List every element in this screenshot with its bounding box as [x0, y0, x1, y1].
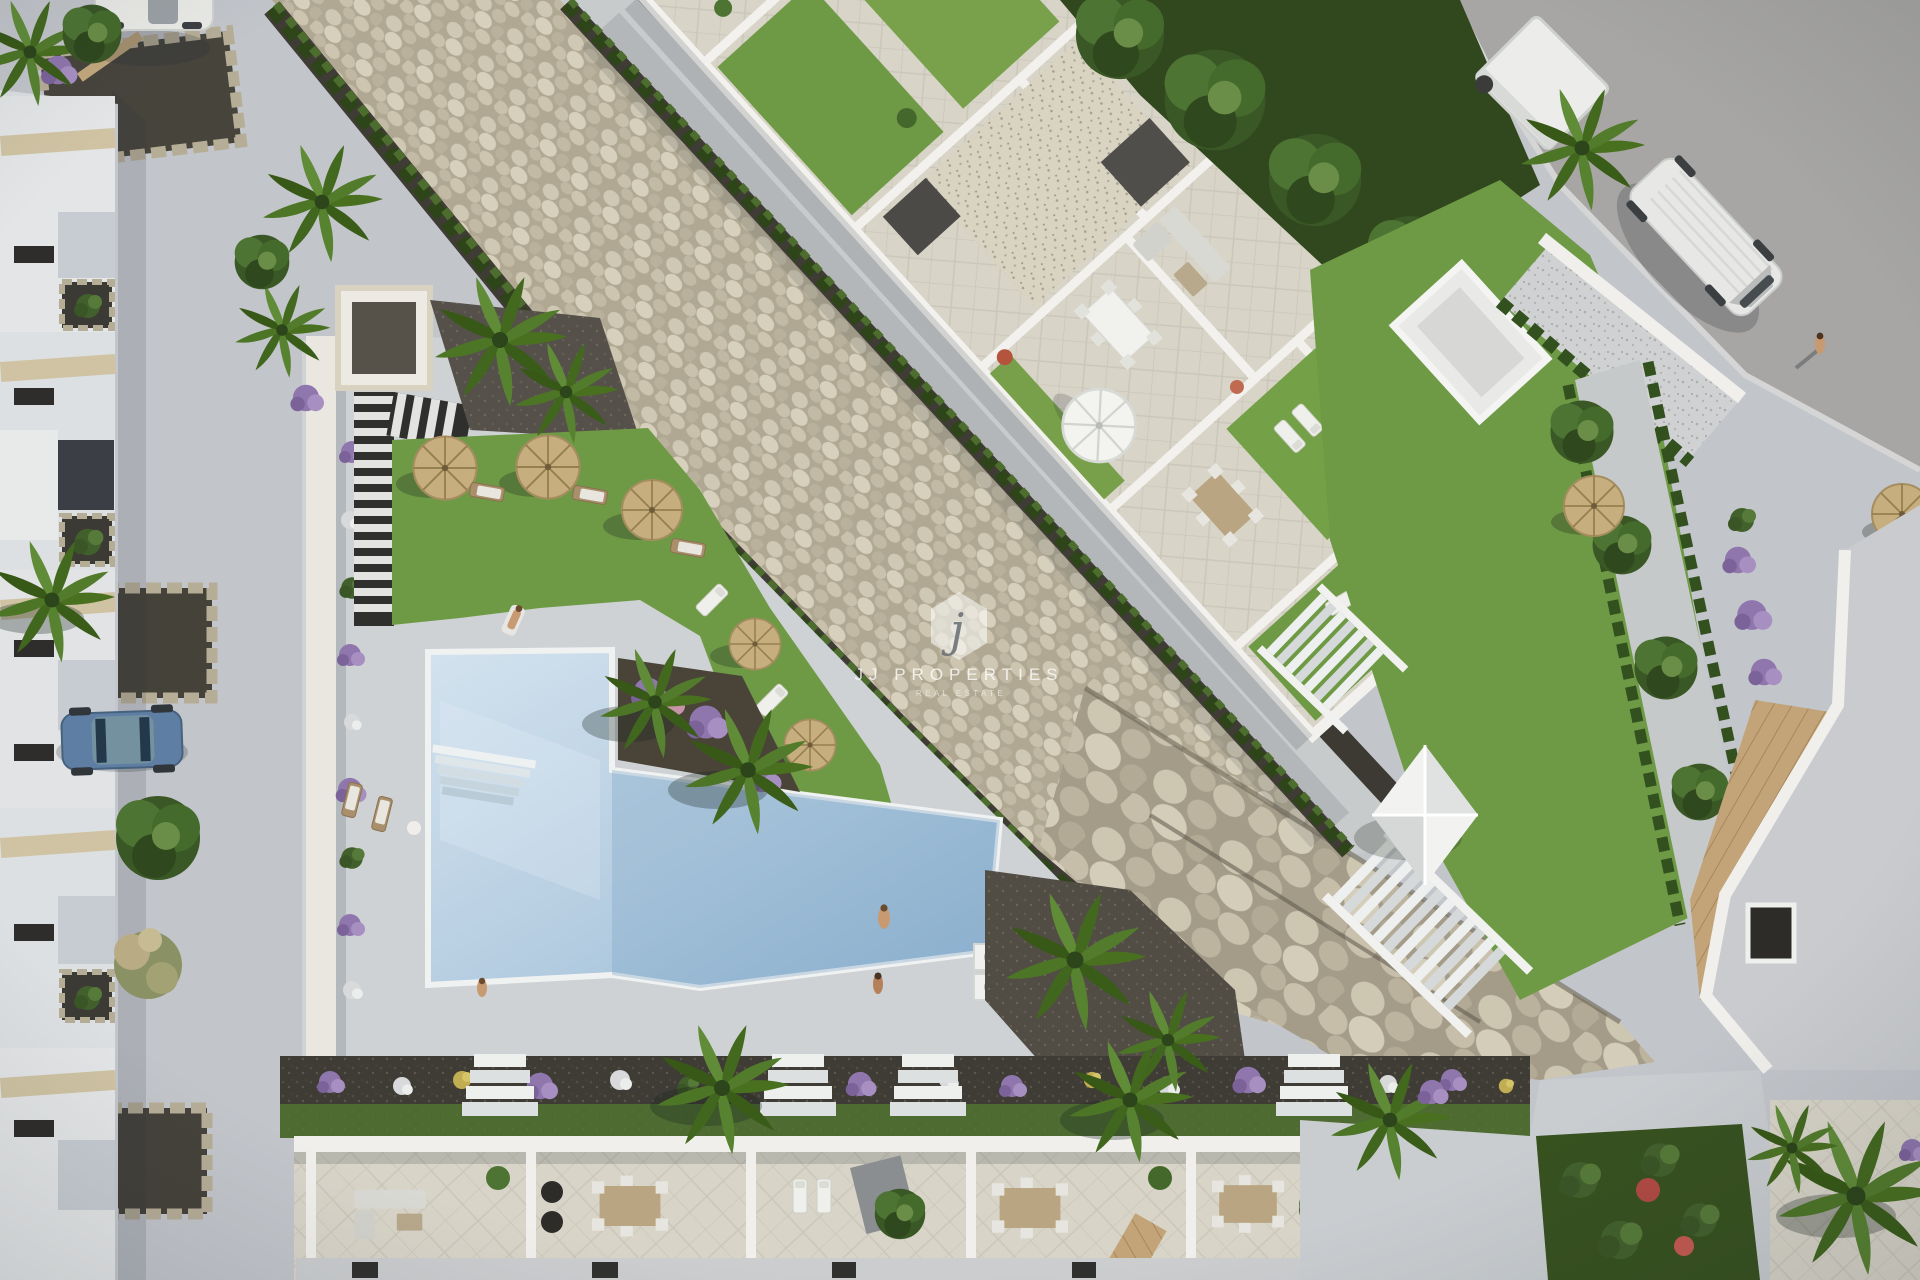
watermark-title: JJ PROPERTIES	[855, 665, 1064, 684]
aerial-render-residential-complex: j JJ PROPERTIES REAL ESTATE	[0, 0, 1920, 1280]
watermark-subtitle: REAL ESTATE	[916, 689, 1006, 698]
